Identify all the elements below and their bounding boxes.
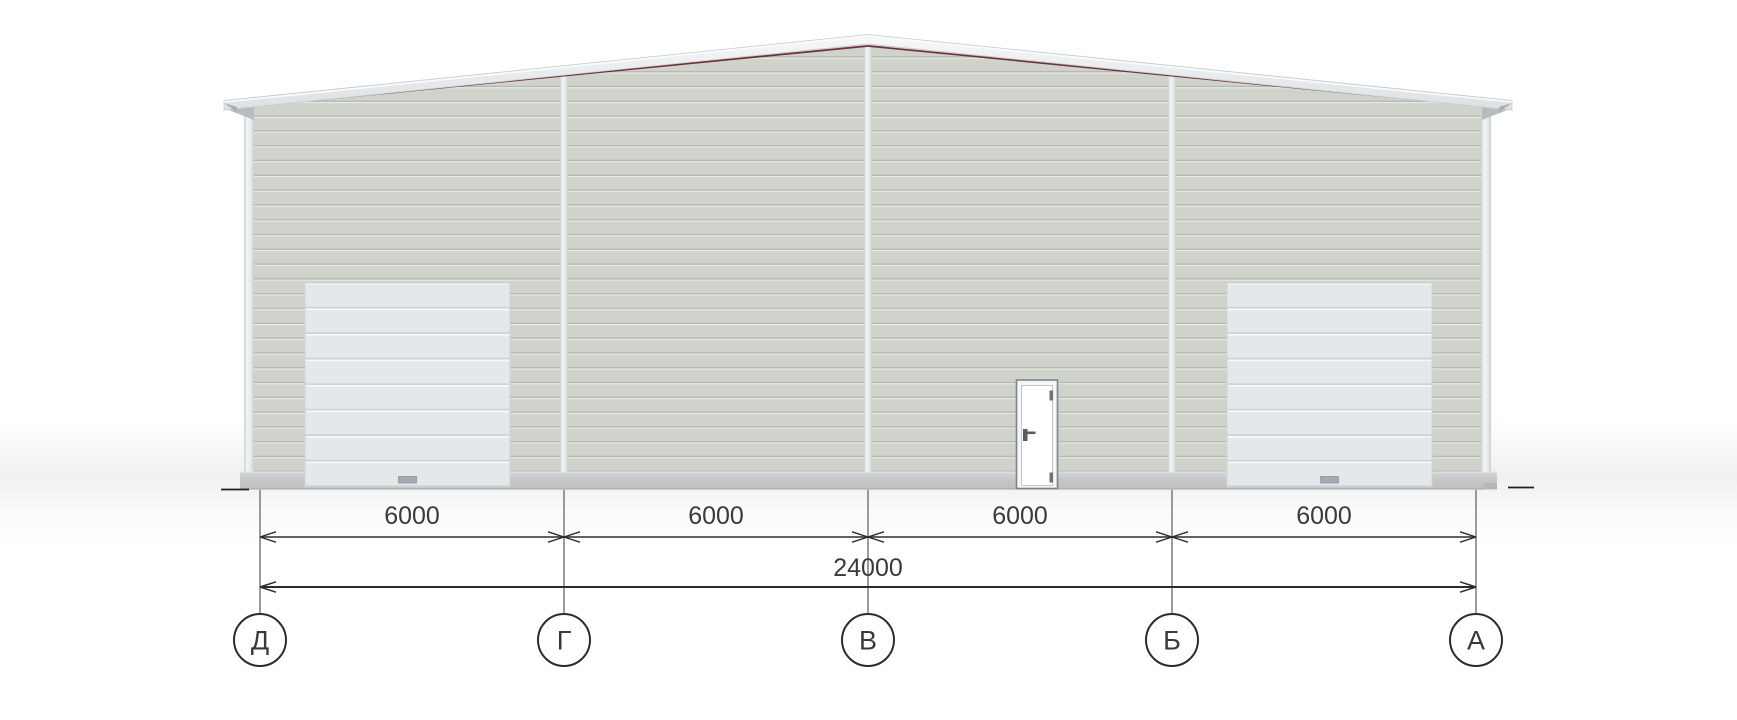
frame-column-axis-v [864,38,872,472]
axis-markers: Д Г В Б А [234,614,1502,666]
door-hinge-bottom [1050,473,1054,483]
sectional-gate-right [1227,283,1432,487]
door-handle-lever [1028,432,1036,435]
axis-label-v: В [859,626,877,656]
door-handle [1023,429,1028,441]
door-hinge-top [1050,391,1054,401]
gate-handle-right [1321,477,1339,484]
dim-label-bay-3: 6000 [992,502,1048,530]
dim-label-overall: 24000 [833,554,903,582]
plinth-step-right [1484,483,1497,490]
entry-door [1017,380,1058,489]
axis-label-g: Г [557,626,572,656]
sectional-gate-left [305,283,510,487]
dim-label-bay-4: 6000 [1296,502,1352,530]
gate-handle-left [399,477,417,484]
axis-label-d: Д [251,626,269,656]
axis-label-a: А [1467,626,1485,656]
dim-label-bay-1: 6000 [384,502,440,530]
axis-label-b: Б [1163,626,1181,656]
frame-column-axis-g [560,38,568,472]
dim-label-bay-2: 6000 [688,502,744,530]
drawing-canvas: 6000 6000 6000 6000 24000 Д Г В Б А [0,0,1737,720]
elevation-drawing: 6000 6000 6000 6000 24000 Д Г В Б А [0,0,1737,720]
frame-column-axis-b [1168,38,1176,472]
